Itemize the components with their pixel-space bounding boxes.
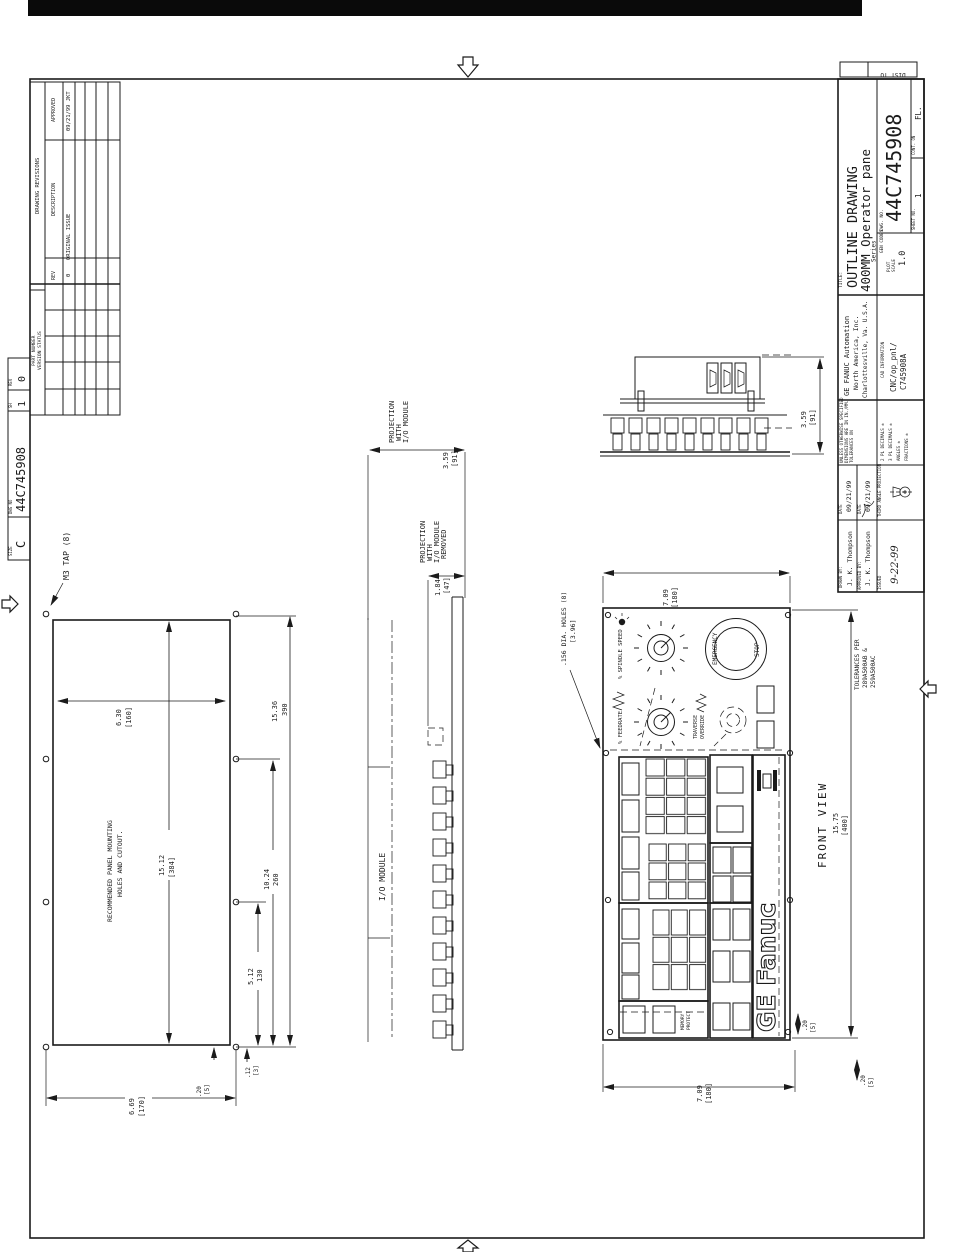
hole-note-leader [570,670,600,748]
mounting-bolt-left [638,391,644,411]
center-mark-bottom-icon [458,1240,478,1252]
tolerance-note-line6: ANGLES ± [896,440,901,461]
feedrate-label: % FEEDRATE [618,711,624,744]
estop-label-line2: STOP [754,642,761,657]
dim-cutout-width-in: 6.30 [115,709,123,726]
drawn-date-value: 09/21/99 [845,481,853,512]
dim-proj-without-mm: [47] [443,577,451,594]
ge-101-icon [757,770,777,791]
dim-elev-depth-in: 3.59 [800,411,808,428]
cutout-caption-line1: RECOMMENDED PANEL MOUNTING [106,820,114,922]
tap-note-leader [51,583,63,605]
strip-size-value: C [14,541,28,548]
strip-size-label: SIZE [8,546,13,556]
ge-fanuc-logo: GE Fanuc [752,903,781,1032]
drawn-date-label: DATE [838,504,843,514]
dim-front-width-bottom-in: 7.09 [696,1085,704,1102]
front-tolerance-line2: 289A500AB & [862,648,869,688]
gen-codes-label: GEN CODES [879,229,885,253]
dim-512-mm: 130 [256,969,264,982]
approved-by-label: APPROVED BY: [857,561,862,590]
plot-scale-value: 1.0 [898,251,908,266]
tolerance-note-line7: FRACTIONS ± [904,433,909,461]
description-column-header: DESCRIPTION [51,183,57,216]
dim-cutout-width-mm: [160] [125,707,133,728]
strip-sheet-label: SH [8,403,13,408]
estop-label-line1: EMERGENCY [712,632,719,665]
dim-offset3-in: .12 [245,1067,252,1078]
key-rows [610,417,770,452]
tap-note: M3 TAP (8) [62,532,71,580]
sheet-frame: DIST TO REV 0 SH 1 DWG NO 44C745908 SIZE… [2,0,936,1252]
feedrate-pot-icon [613,692,624,710]
dim-cutout-height-mm: [384] [168,857,176,878]
part-number-label: PART NUMBER [31,335,37,366]
feedrate-dial [634,695,688,749]
io-connector-hidden [428,728,443,745]
keyboard: MEMORY PROTECT [619,755,752,1038]
emergency-stop-button: EMERGENCY STOP [706,619,767,680]
revision-rev-value: 0 [66,274,72,277]
panel-cutout-outline [53,620,230,1045]
drawing-title-line3: Series [871,240,878,262]
dim-front-offset1-in: .20 [802,1020,809,1031]
engineering-drawing-sheet: DIST TO REV 0 SH 1 DWG NO 44C745908 SIZE… [0,0,958,1252]
cont-on-label: CONT. ON [911,135,916,155]
version-status-label: VERSION STATUS [37,331,43,370]
io-module-label: I/O MODULE [378,853,387,901]
strip-rev-label: REV [8,378,13,386]
dim-offset5-mm: [5] [204,1084,211,1095]
cutout-view: M3 TAP (8) RECOMMENDED PANEL MOUNTING HO… [43,532,296,1117]
dim-front-width-top-mm: [180] [671,587,679,608]
dim-proj-without-in: 1.84 [434,579,442,596]
tolerance-note-line4: 2 PL DECIMALS ± [880,423,885,461]
hole-note-line2: [3.96] [569,620,577,643]
dim-front-width-bottom-mm: [180] [705,1083,713,1104]
memory-protect-label-line1: MEMORY [680,1013,686,1030]
mounting-holes [43,611,239,1050]
scan-black-bar [28,0,862,16]
title-label: TITLE: [838,272,844,288]
spindle-lamp-icon [615,613,629,625]
dim-1024-mm: 260 [272,873,280,886]
strip-rev-value: 0 [17,376,28,382]
dim-hole-span-mm: 390 [281,703,289,716]
dim-front-offset1-mm: [5] [810,1022,817,1033]
key-row-profile [430,757,454,1045]
spindle-speed-label: % SPINDLE SPEED [618,629,624,679]
proj-without-line4: REMOVED [440,529,448,559]
dim-hole-width-mm: [170] [138,1096,146,1117]
dist-to-label: DIST TO [880,71,906,78]
dim-proj-with-mm: [91] [451,450,459,467]
tolerance-note-line3: TOLERANCES ON [849,430,854,463]
dim-proj-with-in: 3.59 [442,452,450,469]
tolerance-note-line5: 3 PL DECIMALS ± [888,423,893,461]
company-line3: Charlottesville, Va. U.S.A. [862,300,869,398]
dim-offset5-in: .20 [196,1086,203,1097]
memory-protect-keyswitch [623,1006,645,1033]
issued-label: ISSUED [877,575,882,590]
drawing-title-line2: 400MM Operator pane [858,149,873,292]
cont-on-value: FL. [914,106,923,120]
center-mark-left-icon [2,596,18,612]
rev-column-header: REV [51,271,57,280]
dim-front-offset2-mm: [5] [868,1077,875,1088]
scale-label: SCALE [891,259,897,272]
dist-to-cell: DIST TO [840,62,917,78]
approved-column-header: APPROVED [51,98,57,122]
center-mark-top-icon [458,57,478,77]
dim-front-height-mm: [400] [841,815,849,836]
cad-path-line1: CNC/op_pnl/ [889,342,898,392]
third-angle-projection-label: THIRD ANGLE PROJECTION [877,463,882,517]
center-mark-right-icon [920,681,936,697]
approved-by-value: J. K. Thompson [864,531,872,586]
title-block: TITLE: OUTLINE DRAWING 400MM Operator pa… [838,79,924,592]
traverse-label-line2: OVERRIDE [700,715,706,739]
traverse-pot-icon [696,694,706,712]
revision-table: DRAWING REVISIONS APPROVED 09/21/99 JKT … [30,82,120,415]
dim-hole-span-in: 15.36 [271,701,279,722]
margin-id-strip: REV 0 SH 1 DWG NO 44C745908 SIZE C [8,358,30,560]
traverse-label-line1: TRAVERSE [693,715,699,739]
sheet-no-value: 1 [914,193,923,198]
cad-path-line2: C745908A [899,353,908,390]
issued-date-handwritten: 9-22-99 [890,545,901,584]
revision-table-title: DRAWING REVISIONS [35,158,41,214]
revision-description-value: ORIGINAL ISSUE [66,214,72,260]
cad-info-label: CAD INFORMATION [880,341,885,378]
spindle-speed-dial [634,621,688,675]
cutout-caption-line2: HOLES AND CUTOUT. [116,830,124,897]
dwg-number: 44C745908 [882,114,906,222]
company-line1: GE FANUC Automation [843,316,851,396]
mounting-bolt-right [748,391,754,411]
hole-note-line1: .156 DIA. HOLES (8) [560,592,568,666]
dim-front-offset2-in: .20 [860,1075,867,1086]
revision-approved-value: 09/21/99 JKT [66,91,72,131]
keyswitch-upper [757,686,774,713]
third-angle-projection-icon [890,487,913,497]
drawn-by-value: J. K. Thompson [846,531,854,586]
proj-with-line3: I/O MODULE [402,401,410,443]
front-view-caption: FRONT VIEW [816,782,829,868]
strip-sheet-value: 1 [17,401,28,407]
sheet-no-label: SHEET NO. [911,208,916,230]
approved-date-label: DATE [857,504,862,514]
drawn-by-label: DRAWN BY: [838,566,843,588]
dim-1024-in: 10.24 [263,869,271,890]
dim-offset3-mm: [3] [253,1065,260,1076]
front-tolerance-line3: 259A500AC [870,655,877,688]
company-line2: North America, Inc. [852,316,860,390]
strip-dwg-number: 44C745908 [14,447,28,512]
dim-hole-width-in: 6.69 [128,1098,136,1115]
dim-512-in: 5.12 [247,968,255,985]
front-view: % SPINDLE SPEED % FEEDRATE EMERGENCY STO… [560,573,877,1104]
dim-front-width-top-in: 7.09 [662,589,670,606]
traverse-override-dial [720,707,746,733]
io-connectors [707,363,746,393]
dim-elev-depth-mm: [91] [809,409,817,426]
strip-dwg-label: DWG NO [8,499,13,514]
side-view: I/O MODULE PROJECTION WITH I/O MODULE 3.… [368,401,465,1050]
front-tolerance-line1: TOLERANCES PER [854,639,861,690]
memory-protect-label-line2: PROTECT [686,1011,692,1030]
logo-strip: GE Fanuc [752,755,785,1038]
dim-front-height-in: 15.75 [832,813,840,834]
elevation-view: 3.59 [91] [600,355,824,456]
keyswitch-lower [757,721,774,748]
dim-cutout-height-in: 15.12 [158,855,166,876]
